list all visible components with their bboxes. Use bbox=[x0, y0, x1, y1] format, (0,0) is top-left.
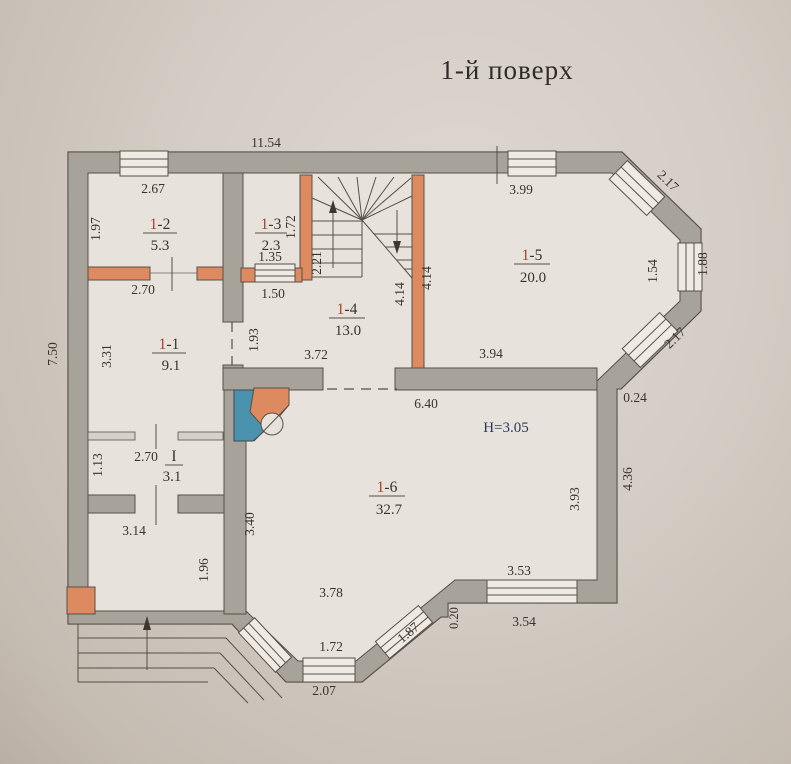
ceiling-height-label: H=3.05 bbox=[483, 420, 529, 436]
dim-hall-top: 3.14 bbox=[122, 523, 146, 538]
window-r13-bottom bbox=[255, 264, 295, 282]
dim-rI-top: 2.70 bbox=[134, 449, 158, 464]
floorplan-drawing: 1-й поверх bbox=[0, 0, 791, 764]
dim-r16-right: 3.93 bbox=[567, 487, 582, 511]
wall-main-left bbox=[223, 368, 323, 390]
dim-r13-open-bottom: 1.50 bbox=[261, 286, 285, 301]
porch-pillar bbox=[67, 587, 95, 614]
window-bay-bottom bbox=[303, 658, 355, 682]
dim-bay-outer: 2.07 bbox=[312, 683, 336, 698]
floorplan-page: 1-й поверх bbox=[0, 0, 791, 764]
dim-r14-bottom: 3.72 bbox=[304, 347, 328, 362]
dim-r13-right: 1.72 bbox=[283, 215, 298, 239]
wall-rI-hall-right bbox=[178, 495, 224, 513]
room-code-1-2: 1-2 bbox=[150, 216, 171, 233]
fireplace-hearth-arc bbox=[261, 413, 283, 435]
dim-right-lower-outer: 4.36 bbox=[620, 467, 635, 491]
page-title: 1-й поверх bbox=[440, 55, 573, 85]
window-top-right bbox=[508, 151, 556, 176]
room-area-1-4: 13.0 bbox=[335, 323, 361, 339]
window-bottom-right bbox=[487, 580, 577, 603]
room-code-I: I bbox=[171, 448, 176, 465]
dim-r16-top: 6.40 bbox=[414, 396, 438, 411]
dim-left-total: 7.50 bbox=[45, 342, 60, 366]
room-area-1-2: 5.3 bbox=[151, 238, 170, 254]
dim-hall-right: 1.96 bbox=[196, 558, 211, 582]
partition-r12-right bbox=[197, 267, 223, 280]
dim-r11-open: 1.93 bbox=[246, 328, 261, 352]
partition-r11-rI-right bbox=[178, 432, 223, 440]
room-code-1-3: 1-3 bbox=[261, 216, 282, 233]
dim-rI-left: 1.13 bbox=[90, 453, 105, 477]
dim-top-total: 11.54 bbox=[251, 135, 281, 150]
window-top-left bbox=[120, 151, 168, 176]
room-area-1-6: 32.7 bbox=[376, 502, 403, 518]
dim-r12-left: 1.97 bbox=[88, 217, 103, 241]
partition-r12-left bbox=[88, 267, 150, 280]
wall-r12-r13 bbox=[223, 173, 243, 322]
dim-r12-bottom: 2.70 bbox=[131, 282, 155, 297]
partition-r11-rI-left bbox=[88, 432, 135, 440]
dim-r15-bottom: 3.94 bbox=[479, 346, 503, 361]
dim-stairs-left: 4.14 bbox=[392, 282, 407, 306]
dim-bay-top: 3.78 bbox=[319, 585, 343, 600]
room-area-1-3: 2.3 bbox=[262, 238, 281, 254]
room-code-1-4: 1-4 bbox=[337, 301, 358, 318]
dim-bay-inner: 1.72 bbox=[319, 639, 343, 654]
dim-stairs-depth: 2.21 bbox=[309, 251, 324, 275]
dim-r12-top: 2.67 bbox=[141, 181, 165, 196]
dim-top-window: 3.99 bbox=[509, 182, 533, 197]
dim-right-window-inner: 1.54 bbox=[645, 259, 660, 283]
room-area-1-5: 20.0 bbox=[520, 270, 546, 286]
partition-r13-stub-left bbox=[241, 268, 255, 282]
dim-bottom-step: 0.20 bbox=[447, 607, 461, 629]
dim-r16-left: 3.40 bbox=[242, 512, 257, 536]
dim-r11-left: 3.31 bbox=[99, 344, 114, 368]
wall-rI-hall-left bbox=[88, 495, 135, 513]
wall-main-right bbox=[395, 368, 597, 390]
dim-right-window-outer: 1.88 bbox=[695, 252, 710, 276]
room-code-1-5: 1-5 bbox=[522, 247, 543, 264]
dim-bottom-outer: 3.54 bbox=[512, 614, 536, 629]
room-area-I: 3.1 bbox=[163, 469, 182, 485]
room-area-1-1: 9.1 bbox=[162, 358, 181, 374]
room-code-1-1: 1-1 bbox=[159, 336, 180, 353]
dim-step-right: 0.24 bbox=[623, 390, 647, 405]
dim-stairs-right: 4.14 bbox=[419, 266, 434, 290]
room-code-1-6: 1-6 bbox=[377, 479, 398, 496]
dim-bottom-inner: 3.53 bbox=[507, 563, 531, 578]
